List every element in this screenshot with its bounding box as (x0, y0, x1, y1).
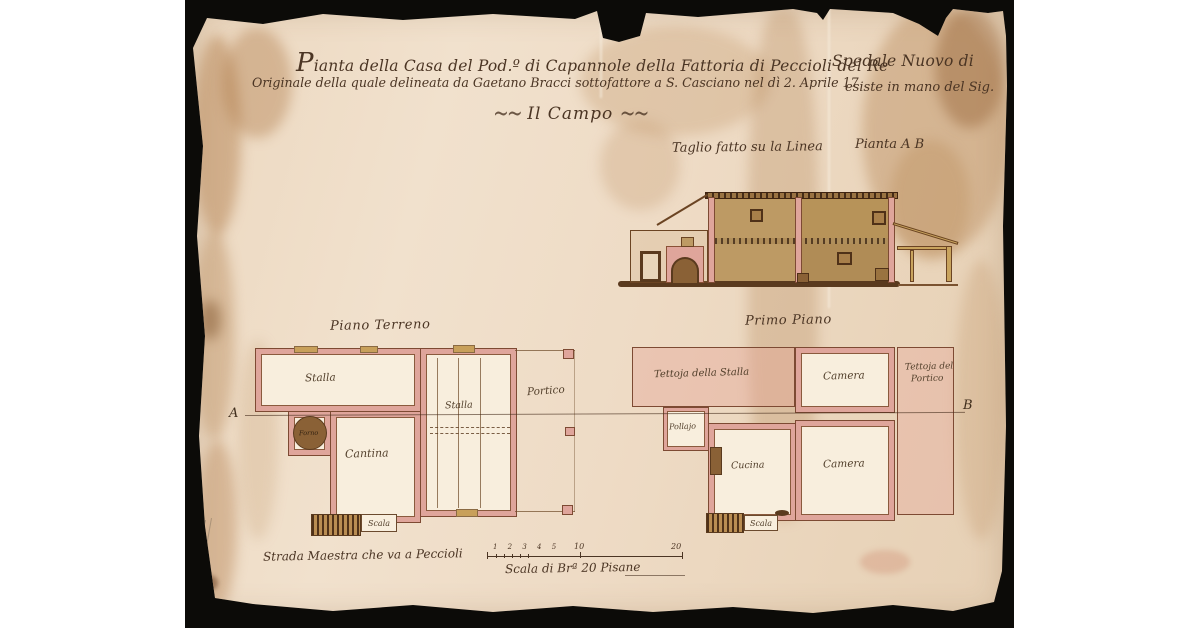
scanned-manuscript-plan: Pianta della Casa del Pod.º di Capannole… (0, 0, 1200, 628)
scale-tick-mid-label: 10 (574, 542, 584, 551)
scale-label: Scala di Brª 20 Pisane (505, 560, 641, 576)
room-cantina (330, 411, 421, 523)
elevation-right-leanto-beam (897, 246, 951, 250)
scale-bar-tick (580, 552, 581, 558)
dashed-section-line (430, 427, 510, 428)
room-label-forno: Forno (299, 429, 318, 438)
title-line3: Il Campo (527, 104, 613, 124)
section-caption-right: Pianta A B (855, 137, 924, 152)
elevation-right-leanto-post (910, 250, 914, 282)
title-flourish-right: ~~ (620, 98, 648, 129)
stairs-hatch (706, 513, 744, 533)
elevation-lower-room-left (715, 244, 795, 281)
elevation-left-leanto-roof (656, 194, 708, 226)
scale-label-flourish-line (625, 575, 685, 576)
dashed-section-line (430, 433, 510, 434)
elevation-window (750, 209, 763, 222)
room-cantina-interior (336, 417, 415, 517)
elevation-chimney (681, 237, 694, 247)
room-label-camera-top: Camera (823, 369, 865, 382)
title-line1-right: Spedale Nuovo di (832, 52, 974, 70)
stairs-label: Scala (744, 515, 778, 531)
elevation-window (837, 252, 852, 265)
elevation-threshold (797, 273, 809, 283)
title-line2-left: Originale della quale delineata da Gaeta… (252, 76, 859, 91)
room-camera-bottom-interior (801, 426, 889, 515)
room-label-stalla-center: Stalla (445, 400, 473, 412)
scale-bar-tick (487, 552, 488, 559)
manuscript-paper: Pianta della Casa del Pod.º di Capannole… (193, 6, 1007, 619)
stairs-hatch (311, 514, 361, 536)
room-label-cucina: Cucina (731, 460, 765, 472)
door-opening (456, 509, 478, 517)
elevation-threshold (875, 268, 889, 281)
elevation-oven-arch (671, 257, 699, 283)
faint-stamp-mark (860, 550, 910, 574)
section-marker-a: A (229, 406, 238, 421)
section-caption-left: Taglio fatto su la Linea (672, 139, 823, 156)
elevation-ground-extension (898, 284, 958, 286)
portico-pillar (565, 427, 575, 436)
door-opening (360, 346, 378, 353)
elevation-post-right (888, 197, 895, 283)
scale-bar-tick (528, 554, 529, 558)
stairs-label: Scala (361, 514, 397, 532)
door-opening (294, 346, 318, 353)
room-label-stalla-left: Stalla (305, 372, 336, 385)
room-label-tettoja-portico-1: Tettoja del (905, 361, 954, 372)
first-floor-title: Primo Piano (745, 312, 832, 329)
room-label-cantina: Cantina (345, 446, 389, 460)
elevation-post-middle (795, 197, 802, 283)
section-marker-b: B (963, 398, 973, 413)
road-label: Strada Maestra che va a Peccioli (263, 546, 463, 563)
elevation-right-leanto-rafter (893, 222, 959, 245)
portico-pillar (563, 349, 574, 359)
scale-bar-tick (520, 554, 521, 558)
scale-tick-end-label: 20 (671, 542, 681, 551)
elevation-window (872, 211, 886, 225)
room-stalla-left (255, 348, 421, 412)
elevation-post-left (708, 197, 715, 283)
title-flourish-left: ~~ (493, 98, 521, 129)
room-label-tettoja-portico-2: Portico (911, 374, 944, 385)
room-label-portico: Portico (527, 384, 566, 399)
room-cucina-interior (714, 429, 791, 515)
room-camera-bottom (795, 420, 895, 521)
title-line2-right: esiste in mano del Sig. (845, 80, 994, 95)
scale-ticks-small-labels: 1 2 3 4 5 (493, 543, 560, 551)
room-label-pollajo: Pollajo (669, 422, 696, 432)
elevation-leanto-door (640, 251, 661, 282)
cucina-door-recess (710, 447, 722, 475)
scale-bar-tick (682, 552, 683, 559)
scale-bar-tick (512, 554, 513, 558)
title-line1-left: Pianta della Casa del Pod.º di Capannole… (296, 48, 888, 78)
room-stalla-left-interior (261, 354, 415, 406)
room-label-camera-bottom: Camera (823, 457, 865, 470)
ground-floor-title: Piano Terreno (330, 317, 431, 334)
stain (600, 120, 680, 210)
portico-pillar (562, 505, 573, 515)
scale-bar-tick (496, 554, 497, 558)
scale-bar-line (487, 556, 683, 557)
scale-bar-tick (504, 554, 505, 558)
elevation-right-leanto-post (946, 246, 952, 282)
door-opening (453, 345, 475, 353)
